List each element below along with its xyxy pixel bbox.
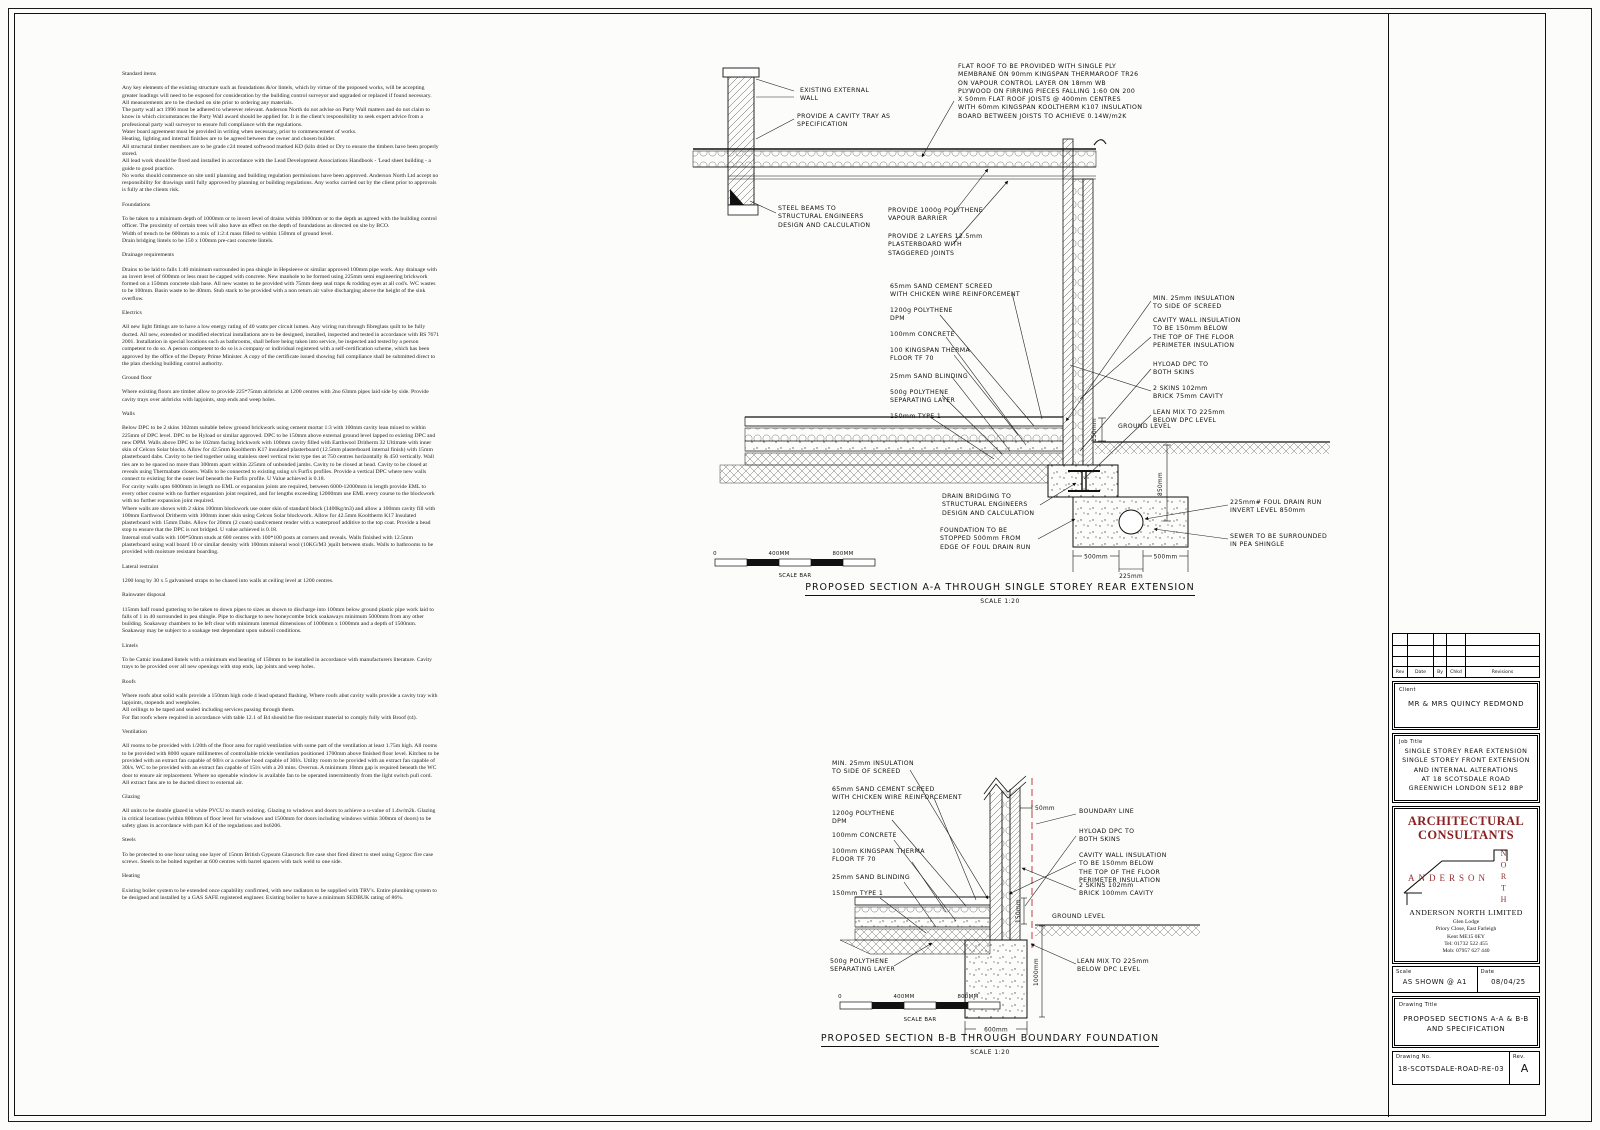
callout-foundation-stopped: FOUNDATION TO BE STOPPED 500mm FROM EDGE… — [940, 527, 1031, 552]
spec-heading: Lateral restraint — [122, 564, 440, 571]
callout-two-skins-b: 2 SKINS 102mm BRICK 100mm CAVITY — [1079, 882, 1154, 899]
callout-sewer-pea-shingle: SEWER TO BE SURROUNDED IN PEA SHINGLE — [1230, 533, 1327, 550]
section-a-scale: SCALE 1:20 — [720, 598, 1280, 605]
callout-sand-blinding: 25mm SAND BLINDING — [890, 373, 968, 381]
callout-cavity-wall-insulation: CAVITY WALL INSULATION TO BE 150mm BELOW… — [1153, 317, 1241, 350]
specification-notes: Standard itemsAny key elements of the ex… — [122, 64, 440, 909]
callout-lean-mix-b: LEAN MIX TO 225mm BELOW DPC LEVEL — [1077, 958, 1149, 975]
spec-paragraph: Where roofs abut solid walls provide a 1… — [122, 693, 440, 722]
callout-min-insulation: MIN. 25mm INSULATION TO SIDE OF SCREED — [1153, 295, 1235, 312]
callout-foul-drain-run: 225mm# FOUL DRAIN RUN INVERT LEVEL 850mm — [1230, 499, 1322, 516]
date-label: Date — [1481, 969, 1495, 975]
spec-paragraph: 1200 long by 30 x 5 galvanised straps to… — [122, 578, 440, 585]
callout-vapour-barrier: PROVIDE 1000g POLYTHENE VAPOUR BARRIER — [888, 207, 983, 224]
scalebar-b-400: 400MM — [893, 994, 914, 1000]
existing-wall — [723, 68, 759, 215]
dim-50mm: 50mm — [1035, 806, 1055, 812]
drawing-title-label: Drawing Title — [1399, 1002, 1437, 1008]
rev-cell: Rev. A — [1509, 1052, 1539, 1084]
logo-anderson-text: ANDERSON — [1408, 873, 1489, 883]
anderson-north-logo: ANDERSON NORTH — [1396, 845, 1536, 907]
spec-paragraph: Drains to be laid to falls 1:40 minimum … — [122, 267, 440, 303]
callout-type1-b: 150mm TYPE 1 — [832, 890, 883, 898]
section-a-drawing: 150mm 850mm 500mm 500mm 225mm 0 400MM 80… — [690, 55, 1350, 620]
spec-heading: Lintels — [122, 643, 440, 650]
callout-kingspan-floor: 100 KINGSPAN THERMA FLOOR TF 70 — [890, 347, 970, 364]
spec-heading: Heating — [122, 873, 440, 880]
architect-box: ARCHITECTURAL CONSULTANTS ANDERSON NORTH… — [1392, 806, 1540, 964]
scale-date-box: Scale AS SHOWN @ A1 Date 08/04/25 — [1392, 966, 1540, 993]
rev-label: Rev. — [1513, 1054, 1525, 1060]
section-b-drawing: 50mm 150mm 1000mm 600mm 0 400MM 800MM SC… — [780, 720, 1260, 1065]
scalebar-b-caption: SCALE BAR — [904, 1017, 937, 1023]
callout-concrete: 100mm CONCRETE — [890, 331, 955, 339]
section-a-title: PROPOSED SECTION A-A THROUGH SINGLE STOR… — [720, 575, 1280, 605]
rev-header-revisions: Revisions — [1466, 666, 1539, 677]
new-cavity-wall — [1063, 139, 1093, 465]
section-a-title-text: PROPOSED SECTION A-A THROUGH SINGLE STOR… — [805, 582, 1195, 596]
callout-type1: 150mm TYPE 1 — [890, 413, 941, 421]
callout-hyload-dpc-b: HYLOAD DPC TO BOTH SKINS — [1079, 828, 1134, 845]
dim-150mm: 150mm — [1092, 418, 1098, 442]
spec-heading: Glazing — [122, 794, 440, 801]
scalebar-zero: 0 — [713, 551, 717, 557]
label-ground-level: GROUND LEVEL — [1118, 423, 1171, 431]
company-address: Glen Lodge Priory Close, East Farleigh K… — [1393, 919, 1539, 955]
spec-paragraph: All units to be double glazed in white P… — [122, 808, 440, 830]
spec-paragraph: To be Catnic insulated lintels with a mi… — [122, 657, 440, 672]
rev-header-chkd: Chkd — [1447, 666, 1466, 677]
spec-paragraph: Any key elements of the existing structu… — [122, 85, 440, 194]
spec-paragraph: 115mm half round guttering to be taken t… — [122, 607, 440, 636]
section-b-title: PROPOSED SECTION B-B THROUGH BOUNDARY FO… — [780, 1026, 1200, 1056]
spec-paragraph: Where existing floors are timber allow t… — [122, 389, 440, 404]
spec-paragraph: To be protected to one hour using one la… — [122, 852, 440, 867]
section-b-title-text: PROPOSED SECTION B-B THROUGH BOUNDARY FO… — [821, 1033, 1159, 1047]
spec-heading: Rainwater disposal — [122, 592, 440, 599]
label-ground-level-b: GROUND LEVEL — [1052, 913, 1105, 921]
dim-850mm: 850mm — [1158, 472, 1164, 496]
logo-north-text: NORTH — [1499, 849, 1508, 907]
callout-dpm: 1200g POLYTHENE DPM — [890, 307, 953, 324]
spec-heading: Steels — [122, 837, 440, 844]
spec-heading: Standard items — [122, 71, 440, 78]
callout-hyload-dpc: HYLOAD DPC TO BOTH SKINS — [1153, 361, 1208, 378]
dim-500mm-left: 500mm — [1084, 555, 1108, 561]
rev-header-date: Date — [1408, 666, 1434, 677]
spec-paragraph: All rooms to be provided with 1/20th of … — [122, 743, 440, 787]
callout-min-insulation-b: MIN. 25mm INSULATION TO SIDE OF SCREED — [832, 760, 914, 777]
drawing-title-box: Drawing Title PROPOSED SECTIONS A-A & B-… — [1392, 996, 1540, 1048]
callout-steel-beams: STEEL BEAMS TO STRUCTURAL ENGINEERS DESI… — [778, 205, 870, 230]
callout-dpm-b: 1200g POLYTHENE DPM — [832, 810, 895, 827]
architect-type: ARCHITECTURAL CONSULTANTS — [1393, 814, 1539, 842]
drawing-sheet: Standard itemsAny key elements of the ex… — [0, 0, 1600, 1130]
callout-existing-external-wall: EXISTING EXTERNAL WALL — [800, 87, 869, 104]
spec-heading: Electrics — [122, 310, 440, 317]
drawing-no-label: Drawing No. — [1396, 1054, 1431, 1060]
spec-paragraph: All new light fittings are to have a low… — [122, 324, 440, 368]
flat-roof-assembly — [693, 140, 1106, 179]
scale-cell: Scale AS SHOWN @ A1 — [1393, 967, 1478, 992]
spec-paragraph: Existing boiler system to be extended on… — [122, 888, 440, 903]
scalebar-b-zero: 0 — [838, 994, 842, 1000]
callout-drain-bridging: DRAIN BRIDGING TO STRUCTURAL ENGINEERS D… — [942, 493, 1034, 518]
callout-concrete-b: 100mm CONCRETE — [832, 832, 897, 840]
rev-header-rev: Rev — [1393, 666, 1408, 677]
client-box: Client MR & MRS QUINCY REDMOND — [1392, 681, 1540, 730]
spec-heading: Drainage requirements — [122, 252, 440, 259]
drawing-no-cell: Drawing No. 18-SCOTSDALE-ROAD-RE-03 — [1393, 1052, 1509, 1084]
spec-paragraph: Below DPC to be 2 skins 102mm suitable b… — [122, 425, 440, 556]
date-cell: Date 08/04/25 — [1478, 967, 1539, 992]
drawing-no-box: Drawing No. 18-SCOTSDALE-ROAD-RE-03 Rev.… — [1392, 1051, 1540, 1085]
scale-label: Scale — [1396, 969, 1411, 975]
scalebar-b-800: 800MM — [957, 994, 978, 1000]
spec-heading: Foundations — [122, 202, 440, 209]
revision-table: Rev Date By Chkd Revisions — [1392, 633, 1540, 678]
scalebar-400: 400MM — [768, 551, 789, 557]
job-title-label: Job Title — [1399, 739, 1422, 745]
client-label: Client — [1399, 687, 1416, 693]
callout-separating-layer-b: 500g POLYTHENE SEPARATING LAYER — [830, 958, 895, 975]
spec-heading: Ground floor — [122, 375, 440, 382]
section-b-scale: SCALE 1:20 — [780, 1049, 1200, 1056]
dim-1000mm: 1000mm — [1034, 958, 1040, 986]
dim-500mm-right: 500mm — [1154, 555, 1178, 561]
callout-cavity-wall-insulation-b: CAVITY WALL INSULATION TO BE 150mm BELOW… — [1079, 852, 1167, 885]
job-title-box: Job Title SINGLE STOREY REAR EXTENSION S… — [1392, 733, 1540, 803]
scalebar-800: 800MM — [832, 551, 853, 557]
callout-kingspan-floor-b: 100mm KINGSPAN THERMA FLOOR TF 70 — [832, 848, 925, 865]
callout-cavity-tray: PROVIDE A CAVITY TRAY AS SPECIFICATION — [797, 113, 890, 130]
spec-heading: Ventilation — [122, 729, 440, 736]
callout-sand-blinding-b: 25mm SAND BLINDING — [832, 874, 910, 882]
spec-paragraph: To be taken to a minimum depth of 1000mm… — [122, 216, 440, 245]
callout-two-skins: 2 SKINS 102mm BRICK 75mm CAVITY — [1153, 385, 1223, 402]
spec-heading: Roofs — [122, 679, 440, 686]
dim-150mm-b: 150mm — [1016, 899, 1022, 923]
callout-plasterboard: PROVIDE 2 LAYERS 12.5mm PLASTERBOARD WIT… — [888, 233, 983, 258]
callout-separating-layer: 500g POLYTHENE SEPARATING LAYER — [890, 389, 955, 406]
rev-header-by: By — [1434, 666, 1447, 677]
company-name: ANDERSON NORTH LIMITED — [1393, 908, 1539, 917]
scale-bar-b: 0 400MM 800MM SCALE BAR — [838, 994, 1000, 1023]
callout-flat-roof-spec: FLAT ROOF TO BE PROVIDED WITH SINGLE PLY… — [958, 63, 1142, 121]
callout-screed: 65mm SAND CEMENT SCREED WITH CHICKEN WIR… — [890, 283, 1020, 300]
spec-heading: Walls — [122, 411, 440, 418]
callout-screed-b: 65mm SAND CEMENT SCREED WITH CHICKEN WIR… — [832, 786, 962, 803]
callout-boundary-line: BOUNDARY LINE — [1079, 808, 1134, 816]
